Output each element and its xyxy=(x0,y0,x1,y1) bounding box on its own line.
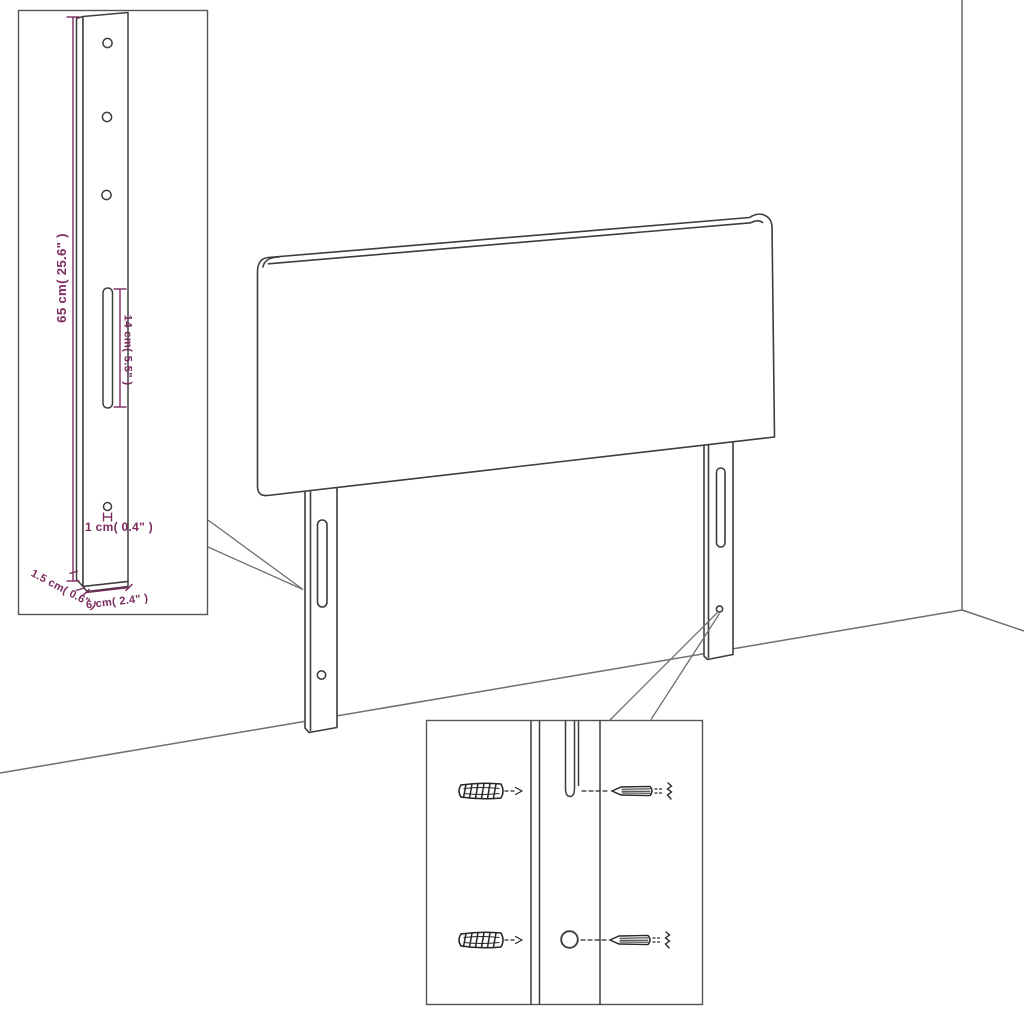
left-leg-slot xyxy=(318,520,328,607)
headboard-right-leg xyxy=(704,434,733,660)
dim-hole-label: 1 cm( 0.4" ) xyxy=(85,520,153,534)
left-leg-hole xyxy=(317,671,325,679)
callout-lines-leg-detail xyxy=(208,520,303,590)
right-leg-hole xyxy=(716,606,722,612)
leg-bottom-hole xyxy=(104,503,112,511)
dim-slot-label: 14 cm( 5.5" ) xyxy=(122,315,134,386)
leg-slot xyxy=(103,288,113,408)
leg-top-hole-3 xyxy=(102,190,111,199)
leg-detail-callout: 65 cm( 25.6" ) 14 cm( 5.5" ) 1 cm( 0.4" … xyxy=(19,11,208,615)
floor-line-right xyxy=(962,610,1024,631)
leg-top-hole-1 xyxy=(103,38,112,47)
headboard-left-leg xyxy=(305,464,337,733)
right-leg-slot xyxy=(717,468,726,547)
leg-top-hole-2 xyxy=(102,112,111,121)
diagram-canvas: 65 cm( 25.6" ) 14 cm( 5.5" ) 1 cm( 0.4" … xyxy=(0,0,1024,1024)
headboard-dimension-diagram: 65 cm( 25.6" ) 14 cm( 5.5" ) 1 cm( 0.4" … xyxy=(0,0,1024,1024)
mounting-detail-border xyxy=(427,721,703,1005)
dim-height-label: 65 cm( 25.6" ) xyxy=(54,233,69,323)
headboard-panel xyxy=(258,214,775,495)
mounting-detail-callout xyxy=(427,721,703,1005)
